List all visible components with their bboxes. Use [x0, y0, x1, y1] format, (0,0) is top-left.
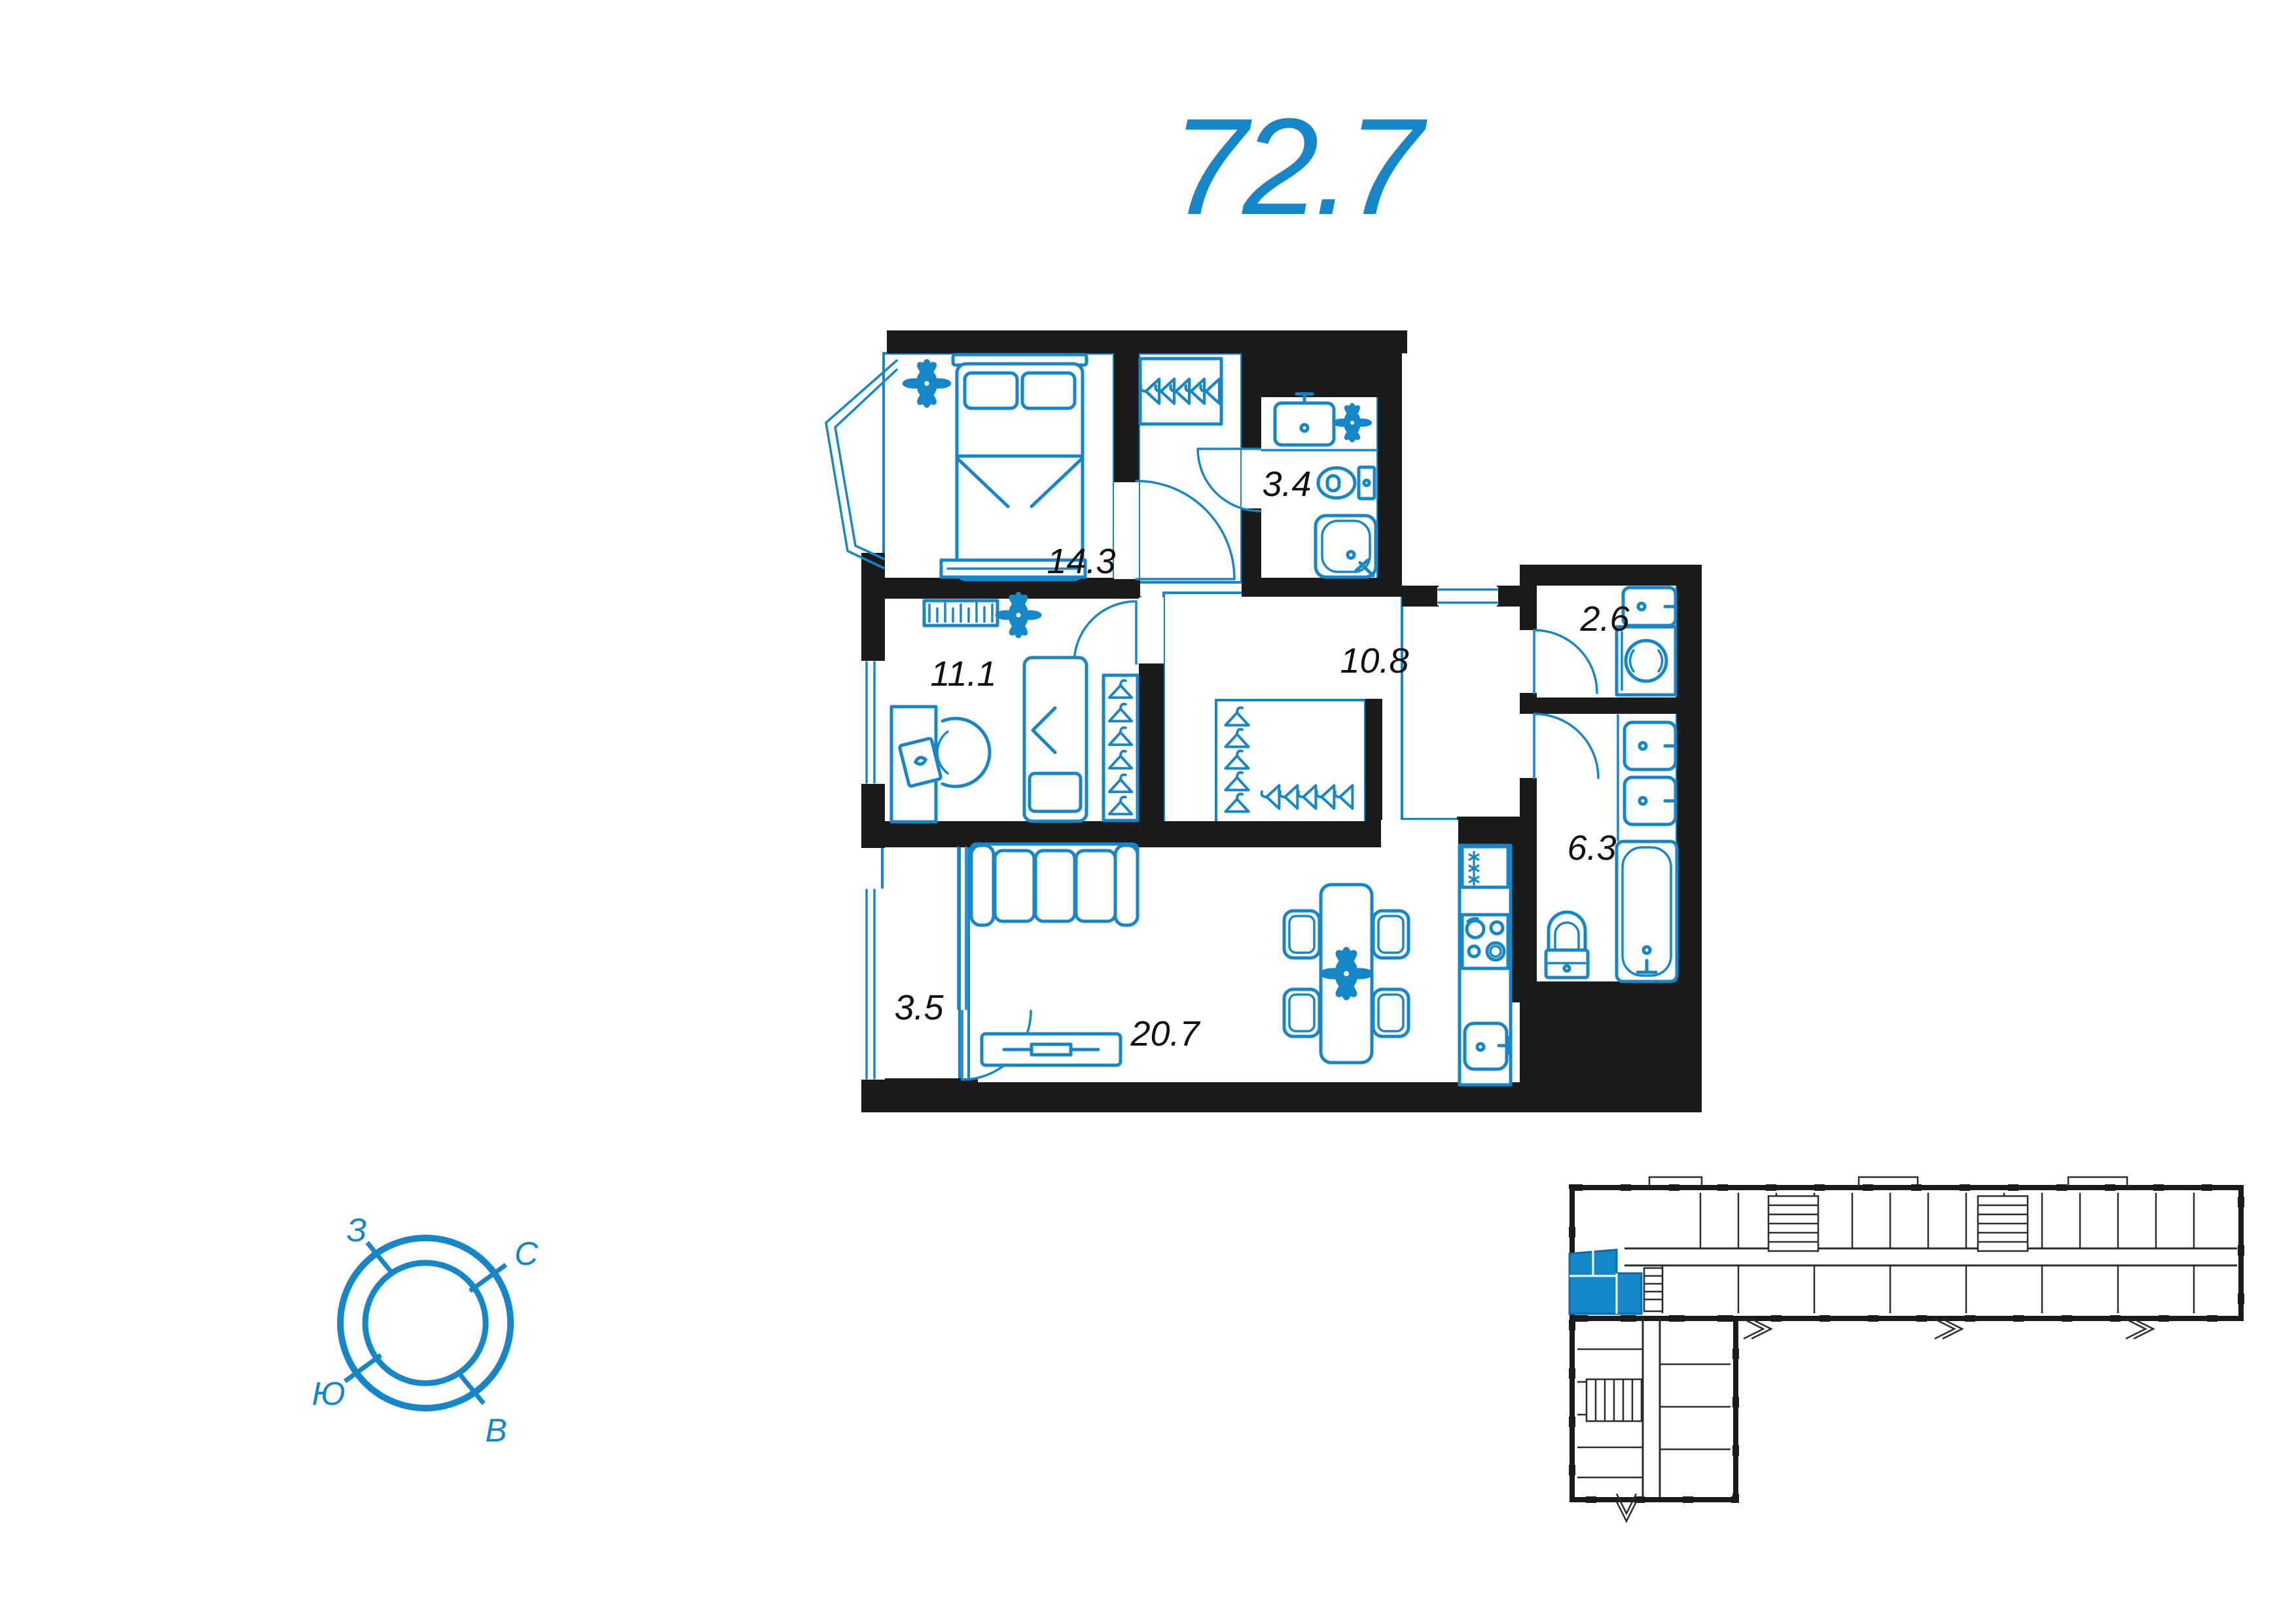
vestibule-wardrobe	[1140, 359, 1221, 424]
compass-label-north: С	[514, 1235, 538, 1273]
floor-plan-page: 72.7 14.3 3.4 10.8 11.1 2.6 6.3 3.5 20.7…	[0, 0, 2296, 1624]
hallway-arm	[1402, 603, 1521, 819]
sofa-icon	[971, 844, 1138, 925]
building-overview	[1570, 1177, 2241, 1521]
sink-icon	[1623, 588, 1676, 626]
room-loggia	[882, 845, 960, 1081]
compass-rose	[340, 1238, 511, 1408]
sink-icon	[1624, 722, 1676, 769]
sink-icon	[1624, 777, 1676, 824]
stove-icon	[1462, 915, 1508, 968]
tv-stand-icon	[982, 1034, 1121, 1065]
desk-icon	[891, 707, 941, 822]
apartment-plan	[822, 330, 1702, 1112]
toilet-icon	[1318, 467, 1374, 499]
radiator-shelf-icon	[924, 601, 997, 626]
total-area-title: 72.7	[1172, 98, 1418, 236]
room-area-label-loggia: 3.5	[894, 987, 943, 1028]
room-area-label-hallway: 10.8	[1340, 641, 1408, 681]
room-area-label-laundry: 2.6	[1580, 599, 1629, 639]
sink-icon	[1275, 394, 1334, 445]
room-area-label-living-kitchen: 20.7	[1130, 1014, 1199, 1054]
wardrobe-icon	[1103, 675, 1138, 821]
kitchen-fixtures	[1460, 845, 1511, 1085]
room-area-label-bedroom: 14.3	[1047, 541, 1115, 582]
bathtub-icon	[1617, 841, 1677, 981]
toilet-icon	[1546, 912, 1588, 978]
fridge-icon	[1462, 847, 1508, 887]
compass-label-south: Ю	[312, 1375, 345, 1413]
building-wing-horizontal	[1572, 1188, 2241, 1318]
room-area-label-bathroom-2: 6.3	[1567, 828, 1616, 868]
single-bed-icon	[1024, 658, 1086, 821]
room-area-label-bathroom: 3.4	[1262, 464, 1311, 504]
compass-label-east: В	[485, 1411, 507, 1449]
kitchen-sink-icon	[1465, 1023, 1509, 1069]
room-area-label-bedroom-2: 11.1	[930, 654, 996, 694]
shower-icon	[1316, 516, 1376, 577]
compass-label-west: З	[347, 1211, 367, 1249]
